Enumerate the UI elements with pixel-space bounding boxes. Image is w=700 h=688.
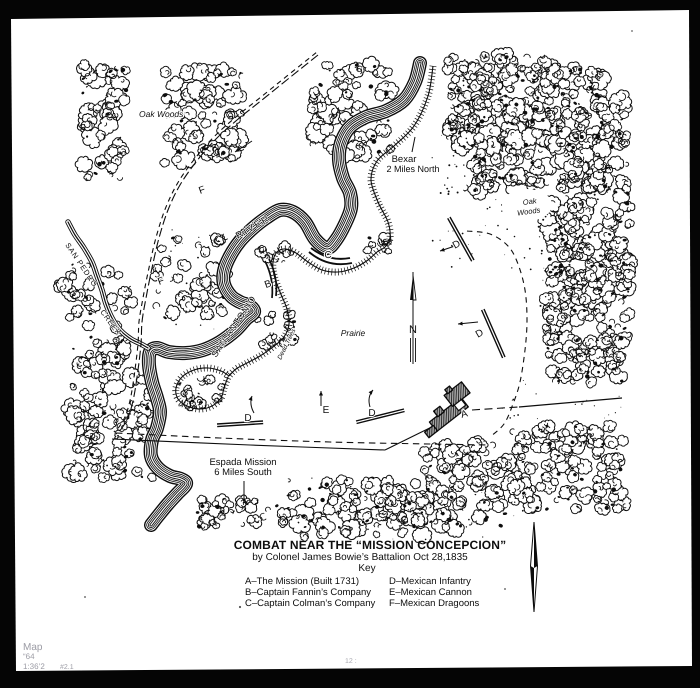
svg-text:E–Mexican Cannon: E–Mexican Cannon xyxy=(389,587,472,598)
svg-text:Key: Key xyxy=(358,563,375,574)
svg-text:“64: “64 xyxy=(23,652,35,661)
svg-text:C: C xyxy=(324,250,331,261)
svg-text:COMBAT NEAR THE “MISSION CONCE: COMBAT NEAR THE “MISSION CONCEPCION” xyxy=(234,538,507,552)
svg-text:6 Miles South: 6 Miles South xyxy=(214,467,272,478)
svg-text:A–The Mission (Built 1731): A–The Mission (Built 1731) xyxy=(245,576,359,587)
svg-text:C–Captain Colman’s Company: C–Captain Colman’s Company xyxy=(245,598,375,609)
svg-text:Prairie: Prairie xyxy=(341,328,366,338)
svg-text:1:36’2: 1:36’2 xyxy=(23,662,45,671)
svg-text:N: N xyxy=(409,324,417,336)
svg-text:Oak Woods: Oak Woods xyxy=(139,109,184,119)
svg-text:by Colonel James Bowie’s Batta: by Colonel James Bowie’s Battalion Oct 2… xyxy=(252,552,468,563)
svg-text:D–Mexican Infantry: D–Mexican Infantry xyxy=(389,576,471,587)
svg-text:B–Captain Fannin’s Company: B–Captain Fannin’s Company xyxy=(245,587,371,598)
svg-text:#2.1: #2.1 xyxy=(60,664,74,671)
svg-text:F–Mexican Dragoons: F–Mexican Dragoons xyxy=(389,598,480,609)
svg-text:D: D xyxy=(368,408,375,419)
svg-text:E: E xyxy=(323,405,330,416)
svg-text:D: D xyxy=(244,413,251,424)
svg-text:2 Miles North: 2 Miles North xyxy=(386,164,439,174)
svg-text:12 :: 12 : xyxy=(345,658,357,665)
